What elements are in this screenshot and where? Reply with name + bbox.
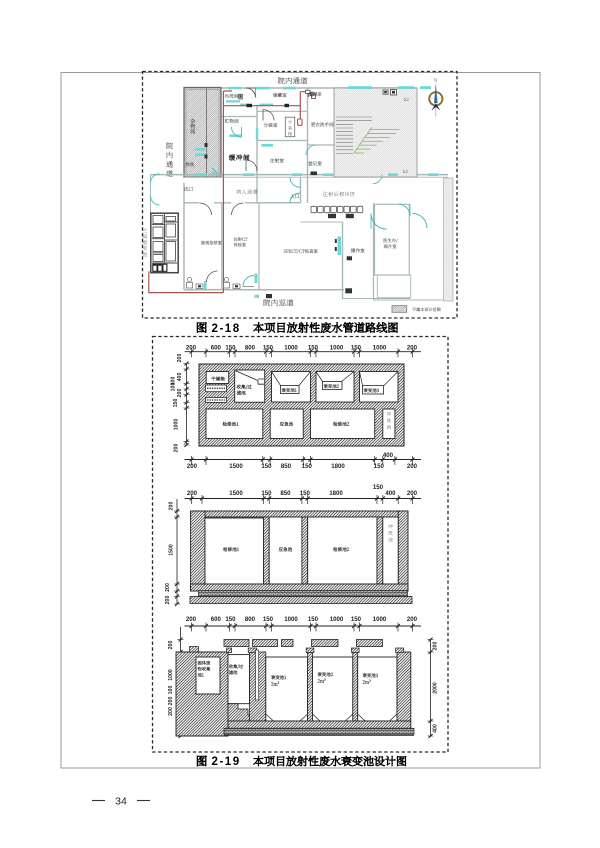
svg-text:150: 150 (300, 490, 311, 497)
svg-text:200: 200 (187, 463, 198, 470)
svg-text:400: 400 (383, 452, 394, 459)
svg-text:200: 200 (187, 490, 198, 497)
svg-text:150: 150 (308, 616, 319, 623)
svg-text:1500: 1500 (169, 544, 175, 556)
svg-text:150: 150 (351, 616, 362, 623)
svg-text:800: 800 (245, 616, 256, 623)
svg-text:200: 200 (168, 641, 174, 650)
svg-text:1500: 1500 (229, 463, 243, 470)
svg-text:150: 150 (308, 344, 319, 351)
svg-text:400: 400 (433, 724, 439, 733)
svg-text:200: 200 (407, 490, 418, 497)
svg-text:2-18: 2-18 (212, 322, 241, 335)
svg-text:150: 150 (225, 344, 236, 351)
svg-text:100: 100 (171, 383, 177, 392)
svg-text:34: 34 (115, 796, 127, 808)
svg-text:200: 200 (168, 697, 174, 706)
svg-text:1800: 1800 (329, 490, 343, 497)
svg-text:150: 150 (374, 463, 385, 470)
svg-text:200: 200 (169, 502, 175, 511)
svg-text:200: 200 (433, 642, 439, 651)
svg-text:850: 850 (280, 490, 291, 497)
svg-text:200: 200 (186, 616, 197, 623)
svg-text:1000: 1000 (284, 344, 298, 351)
svg-text:200: 200 (407, 463, 418, 470)
svg-text:200: 200 (407, 616, 418, 623)
svg-text:100: 100 (168, 686, 174, 695)
svg-text:200: 200 (165, 583, 171, 592)
svg-text:150: 150 (373, 484, 384, 491)
svg-text:200: 200 (177, 389, 183, 398)
svg-text:1800: 1800 (331, 463, 345, 470)
svg-text:850: 850 (281, 463, 292, 470)
svg-text:2000: 2000 (433, 682, 439, 694)
svg-text:200: 200 (165, 596, 171, 605)
svg-text:400: 400 (177, 373, 183, 382)
svg-text:150: 150 (263, 616, 274, 623)
svg-text:150: 150 (225, 616, 236, 623)
svg-text:1500: 1500 (229, 490, 243, 497)
svg-text:200: 200 (174, 444, 180, 453)
svg-text:1000: 1000 (330, 344, 344, 351)
svg-text:150: 150 (261, 463, 272, 470)
svg-text:150: 150 (261, 490, 272, 497)
svg-text:200: 200 (168, 707, 174, 716)
svg-text:150: 150 (351, 344, 362, 351)
svg-text:150: 150 (302, 463, 313, 470)
svg-text:1000: 1000 (174, 419, 180, 431)
svg-text:1000: 1000 (168, 669, 174, 681)
svg-text:1000: 1000 (330, 616, 344, 623)
svg-text:150: 150 (173, 399, 179, 408)
svg-text:2-19: 2-19 (212, 755, 241, 768)
svg-text:1000: 1000 (373, 344, 387, 351)
svg-text:1000: 1000 (373, 616, 387, 623)
svg-text:400: 400 (385, 490, 396, 497)
svg-text:600: 600 (211, 344, 222, 351)
svg-text:150: 150 (263, 344, 274, 351)
svg-text:600: 600 (211, 616, 222, 623)
svg-text:200: 200 (177, 354, 183, 363)
svg-text:200: 200 (186, 344, 197, 351)
svg-text:800: 800 (245, 344, 256, 351)
svg-text:200: 200 (407, 344, 418, 351)
svg-text:1000: 1000 (284, 616, 298, 623)
